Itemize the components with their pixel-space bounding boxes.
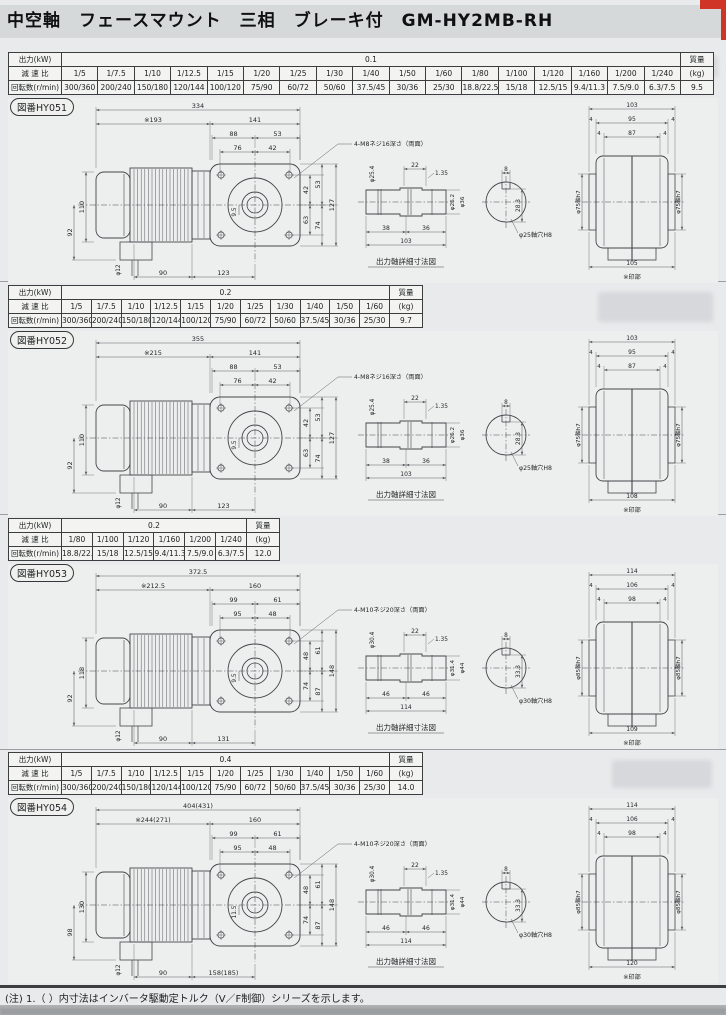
dimension-label: 106 <box>626 816 638 823</box>
dimension-label: 74 <box>314 221 322 229</box>
header-ratio: 減 速 比 <box>9 67 62 81</box>
dimension-label: 46 <box>422 925 430 932</box>
dimension-label: φ85軸h7 <box>674 656 682 680</box>
speed-cell: 15/18 <box>498 81 534 95</box>
dimension-label: 22 <box>411 162 419 169</box>
speed-cell: 60/72 <box>240 314 270 328</box>
dimension-label: 4 <box>597 831 601 837</box>
dimension-label: ※244(271) <box>135 816 170 824</box>
dimension-label: 48 <box>302 886 310 894</box>
speed-cell: 300/360 <box>62 781 92 795</box>
speed-cell: 37.5/45 <box>300 314 330 328</box>
dimension-label: 114 <box>400 704 412 711</box>
header-mass-unit: (kg) <box>390 300 423 314</box>
end-view: 114106449844φ85軸h7φ85軸h7120※印部 <box>574 802 686 981</box>
dimension-label: ※印部 <box>623 739 641 747</box>
dimension-label: 53 <box>273 130 281 138</box>
header-mass-unit: (kg) <box>681 67 714 81</box>
ratio-cell: 1/100 <box>498 67 534 81</box>
dimension-label: 118 <box>78 667 86 679</box>
speed-cell: 50/60 <box>270 314 300 328</box>
dimension-label: 8 <box>504 867 508 873</box>
dimension-label: 92 <box>66 228 74 236</box>
dimension-label: 160 <box>249 582 261 590</box>
speed-cell: 200/240 <box>98 81 134 95</box>
dimension-label: 48 <box>268 844 276 852</box>
ratio-cell: 1/120 <box>123 533 154 547</box>
dimension-label: 123 <box>217 269 229 277</box>
dimension-label: 1.35 <box>435 404 448 410</box>
dimension-label: 90 <box>159 502 167 510</box>
dimension-label: 334 <box>192 102 204 110</box>
dimension-label: 出力軸詳細寸法図 <box>376 956 436 966</box>
red-edge-mark <box>721 8 726 40</box>
ratio-cell: 1/200 <box>185 533 216 547</box>
header-output: 出力(kW) <box>9 753 62 767</box>
dimension-label: 38 <box>382 225 390 232</box>
dimension-label: 4 <box>597 597 601 603</box>
speed-cell: 30/36 <box>389 81 425 95</box>
dimension-label: φ75軸h7 <box>574 423 582 447</box>
dimension-label: 372.5 <box>189 568 208 576</box>
header-speed: 回転数(r/min) <box>9 314 62 328</box>
dimension-label: φ30軸穴H8 <box>519 697 552 705</box>
header-mass: 質量 <box>390 753 423 767</box>
dimension-label: 8 <box>504 167 508 173</box>
dimension-label: φ75軸h7 <box>674 423 682 447</box>
ratio-cell: 1/100 <box>92 533 123 547</box>
dimension-label: 33.3 <box>516 899 522 912</box>
dimension-label: 123 <box>217 502 229 510</box>
dimension-label: 48 <box>268 610 276 618</box>
dimension-label: φ75軸h7 <box>674 190 682 214</box>
ratio-cell: 1/5 <box>62 67 98 81</box>
drawing-area-hy052: 図番HY052 355※215141885376424-M8ネジ16深さ（両面）… <box>8 331 718 516</box>
dimension-label: 61 <box>314 646 322 654</box>
figure-number-badge: 図番HY051 <box>10 98 74 116</box>
output-kw-value: 0.2 <box>62 519 247 533</box>
page-title: 中空軸 フェースマウント 三相 ブレーキ付 GM-HY2MB-RH <box>7 6 553 31</box>
ratio-cell: 1/5 <box>62 767 92 781</box>
ratio-cell: 1/160 <box>154 533 185 547</box>
dimension-label: 90 <box>159 269 167 277</box>
header-mass-unit: (kg) <box>390 767 423 781</box>
dimension-label: 4 <box>597 131 601 137</box>
dimension-label: 99 <box>229 596 237 604</box>
ratio-cell: 1/12.5 <box>171 67 207 81</box>
header-speed: 回転数(r/min) <box>9 547 62 561</box>
speed-cell: 150/180 <box>121 781 151 795</box>
spec-table-hy051: 出力(kW)0.1質量減 速 比1/51/7.51/101/12.51/151/… <box>8 52 714 95</box>
dimension-label: 114 <box>626 568 638 575</box>
shaft-detail-figure: 221.35φ30.4φ31.4φ444646114出力軸詳細寸法図 <box>358 628 466 733</box>
dimension-label: φ31.4 <box>450 893 456 910</box>
section-hy053: 出力(kW)0.2質量減 速 比1/801/1001/1201/1601/200… <box>0 516 726 749</box>
spec-table: 出力(kW)0.2質量減 速 比1/801/1001/1201/1601/200… <box>8 518 280 561</box>
speed-cell: 25/30 <box>426 81 462 95</box>
header-ratio: 減 速 比 <box>9 533 62 547</box>
speed-cell: 37.5/45 <box>300 781 330 795</box>
dimension-label: 4 <box>663 364 667 370</box>
figure-number-badge: 図番HY054 <box>10 798 74 816</box>
dimension-label: 4 <box>589 583 593 589</box>
header-mass: 質量 <box>247 519 280 533</box>
dimension-label: 355 <box>192 335 204 343</box>
header-output: 出力(kW) <box>9 53 62 67</box>
dimension-label: φ85軸h7 <box>574 890 582 914</box>
dimension-label: 9.5 <box>232 207 238 217</box>
keyway-detail: 828.3φ25軸穴H8 <box>482 400 552 472</box>
keyway-detail: 833.3φ30軸穴H8 <box>482 633 552 705</box>
ratio-cell: 1/30 <box>316 67 352 81</box>
ratio-cell: 1/15 <box>181 767 211 781</box>
speed-cell: 30/36 <box>330 781 360 795</box>
dimension-label: 87 <box>314 921 322 929</box>
ratio-cell: 1/60 <box>360 767 390 781</box>
ratio-cell: 1/15 <box>207 67 243 81</box>
dimension-label: 74 <box>314 454 322 462</box>
ratio-cell: 1/25 <box>280 67 316 81</box>
dimension-label: 8 <box>504 400 508 406</box>
shaft-detail-figure: 221.35φ25.4φ26.2φ363836103出力軸詳細寸法図 <box>358 162 466 267</box>
header-mass: 質量 <box>390 286 423 300</box>
speed-cell: 200/240 <box>91 314 121 328</box>
speed-cell: 75/90 <box>211 781 241 795</box>
ratio-cell: 1/40 <box>353 67 389 81</box>
dimension-label: 4 <box>589 350 593 356</box>
dimension-label: 1.35 <box>435 171 448 177</box>
ratio-cell: 1/10 <box>121 300 151 314</box>
dimension-label: φ36 <box>460 196 466 207</box>
dimension-label: 148 <box>328 665 336 677</box>
speed-cell: 120/144 <box>171 81 207 95</box>
dimension-label: 158(185) <box>209 969 239 977</box>
header-speed: 回転数(r/min) <box>9 81 62 95</box>
speed-cell: 75/90 <box>211 314 241 328</box>
ratio-cell: 1/15 <box>181 300 211 314</box>
speed-cell: 100/120 <box>181 781 211 795</box>
dimension-label: 76 <box>233 144 241 152</box>
dimension-label: 108 <box>626 493 638 500</box>
ratio-cell: 1/240 <box>216 533 247 547</box>
ratio-cell: 1/50 <box>330 300 360 314</box>
dimension-label: 127 <box>328 199 336 211</box>
side-and-face-view: 334※193141885376424-M8ネジ16深さ（両面）11092φ12… <box>66 102 427 280</box>
ratio-cell: 1/30 <box>270 767 300 781</box>
figure-number-badge: 図番HY052 <box>10 331 74 349</box>
dimension-label: 114 <box>400 938 412 945</box>
dimension-label: 4 <box>663 597 667 603</box>
ratio-cell: 1/50 <box>330 767 360 781</box>
dimension-label: 130 <box>78 901 86 913</box>
dimension-label: 11.5 <box>232 905 238 918</box>
side-and-face-view: 404(431)※244(271)160996195484-M10ネジ20深さ（… <box>66 802 431 980</box>
speed-cell: 12.5/15 <box>123 547 154 561</box>
dimension-label: 90 <box>159 969 167 977</box>
speed-cell: 6.3/7.5 <box>644 81 681 95</box>
keyway-detail: 833.3φ30軸穴H8 <box>482 867 552 939</box>
dimension-label: 114 <box>626 802 638 809</box>
spec-table-hy052: 出力(kW)0.2質量減 速 比1/51/7.51/101/12.51/151/… <box>8 285 423 328</box>
dimension-label: φ44 <box>460 662 466 673</box>
dimension-label: 95 <box>628 116 636 123</box>
speed-cell: 50/60 <box>270 781 300 795</box>
technical-drawing-hy054: 404(431)※244(271)160996195484-M10ネジ20深さ（… <box>8 798 718 983</box>
ratio-cell: 1/80 <box>62 533 93 547</box>
dimension-label: 42 <box>302 419 310 427</box>
dimension-label: 61 <box>273 596 281 604</box>
dimension-label: 48 <box>302 652 310 660</box>
ratio-cell: 1/80 <box>462 67 498 81</box>
keyway-detail: 828.3φ25軸穴H8 <box>482 167 552 239</box>
dimension-label: 9.5 <box>232 440 238 450</box>
dimension-label: 4 <box>663 131 667 137</box>
dimension-label: 1.35 <box>435 637 448 643</box>
speed-cell: 300/360 <box>62 81 98 95</box>
catalog-page: 中空軸 フェースマウント 三相 ブレーキ付 GM-HY2MB-RH 出力(kW)… <box>0 0 726 1015</box>
dimension-label: 148 <box>328 899 336 911</box>
speed-cell: 100/120 <box>181 314 211 328</box>
speed-cell: 25/30 <box>360 314 390 328</box>
dimension-label: 4-M8ネジ16深さ（両面） <box>354 373 427 381</box>
dimension-label: 127 <box>328 432 336 444</box>
speed-cell: 75/90 <box>244 81 280 95</box>
header-speed: 回転数(r/min) <box>9 781 62 795</box>
figure-number-badge: 図番HY053 <box>10 564 74 582</box>
ratio-cell: 1/7.5 <box>91 767 121 781</box>
ratio-cell: 1/7.5 <box>98 67 134 81</box>
mass-value: 9.7 <box>390 314 423 328</box>
header-output: 出力(kW) <box>9 519 62 533</box>
technical-drawing-hy053: 372.5※212.5160996195484-M10ネジ20深さ（両面）118… <box>8 564 718 749</box>
dimension-label: 4 <box>671 350 675 356</box>
dimension-label: 103 <box>626 335 638 342</box>
dimension-label: 74 <box>302 916 310 924</box>
dimension-label: 36 <box>422 225 430 232</box>
speed-cell: 60/72 <box>280 81 316 95</box>
dimension-label: 105 <box>626 260 638 267</box>
dimension-label: ※193 <box>144 116 162 124</box>
dimension-label: 63 <box>302 449 310 457</box>
dimension-label: 99 <box>229 830 237 838</box>
drawing-area-hy053: 図番HY053 372.5※212.5160996195484-M10ネジ20深… <box>8 564 718 749</box>
dimension-label: 110 <box>78 201 86 213</box>
ratio-cell: 1/5 <box>62 300 92 314</box>
dimension-label: 53 <box>273 363 281 371</box>
ratio-cell: 1/160 <box>571 67 607 81</box>
speed-cell: 120/144 <box>151 314 181 328</box>
section-hy054: 出力(kW)0.4質量減 速 比1/51/7.51/101/12.51/151/… <box>0 750 726 983</box>
speed-cell: 300/360 <box>62 314 92 328</box>
dimension-label: ※215 <box>144 349 162 357</box>
dimension-label: 42 <box>268 377 276 385</box>
dimension-label: φ26.2 <box>450 427 456 443</box>
header-mass-unit: (kg) <box>247 533 280 547</box>
ratio-cell: 1/10 <box>121 767 151 781</box>
speed-cell: 50/60 <box>316 81 352 95</box>
dimension-label: 76 <box>233 377 241 385</box>
ratio-cell: 1/20 <box>244 67 280 81</box>
spec-table: 出力(kW)0.2質量減 速 比1/51/7.51/101/12.51/151/… <box>8 285 423 328</box>
dimension-label: 4 <box>671 583 675 589</box>
shaft-detail-figure: 221.35φ30.4φ31.4φ444646114出力軸詳細寸法図 <box>358 862 466 967</box>
dimension-label: 38 <box>382 458 390 465</box>
dimension-label: 28.3 <box>516 432 522 445</box>
side-and-face-view: 372.5※212.5160996195484-M10ネジ20深さ（両面）118… <box>66 568 431 746</box>
ratio-cell: 1/25 <box>240 300 270 314</box>
spec-table: 出力(kW)0.1質量減 速 比1/51/7.51/101/12.51/151/… <box>8 52 714 95</box>
output-kw-value: 0.2 <box>62 286 390 300</box>
technical-drawing-hy051: 334※193141885376424-M8ネジ16深さ（両面）11092φ12… <box>8 98 718 283</box>
dimension-label: φ31.4 <box>450 659 456 676</box>
dimension-label: 160 <box>249 816 261 824</box>
drawing-area-hy054: 図番HY054 404(431)※244(271)160996195484-M1… <box>8 798 718 983</box>
ratio-cell: 1/12.5 <box>151 300 181 314</box>
dimension-label: 4 <box>589 817 593 823</box>
speed-cell: 60/72 <box>240 781 270 795</box>
dimension-label: ※印部 <box>623 506 641 514</box>
spec-table-hy054: 出力(kW)0.4質量減 速 比1/51/7.51/101/12.51/151/… <box>8 752 423 795</box>
dimension-label: 87 <box>628 363 636 370</box>
dimension-label: 61 <box>314 880 322 888</box>
speed-cell: 37.5/45 <box>353 81 389 95</box>
dimension-label: 92 <box>66 694 74 702</box>
dimension-label: φ25.4 <box>370 165 376 182</box>
section-hy051: 出力(kW)0.1質量減 速 比1/51/7.51/101/12.51/151/… <box>0 50 726 281</box>
header-output: 出力(kW) <box>9 286 62 300</box>
speed-cell: 7.5/9.0 <box>608 81 644 95</box>
ratio-cell: 1/60 <box>426 67 462 81</box>
shaft-detail-figure: 221.35φ25.4φ26.2φ363836103出力軸詳細寸法図 <box>358 395 466 500</box>
dimension-label: 46 <box>382 925 390 932</box>
dimension-label: φ75軸h7 <box>574 190 582 214</box>
dimension-label: 4 <box>663 831 667 837</box>
dimension-label: 95 <box>233 844 241 852</box>
end-view: 10395448744φ75軸h7φ75軸h7105※印部 <box>574 102 686 281</box>
dimension-label: 87 <box>628 130 636 137</box>
dimension-label: 42 <box>268 144 276 152</box>
dimension-label: φ25軸穴H8 <box>519 231 552 239</box>
dimension-label: φ12 <box>116 264 122 276</box>
speed-cell: 9.4/11.3 <box>154 547 185 561</box>
dimension-label: φ25.4 <box>370 398 376 415</box>
dimension-label: φ12 <box>116 730 122 742</box>
ratio-cell: 1/200 <box>608 67 644 81</box>
dimension-label: 4 <box>589 117 593 123</box>
section-hy052: 出力(kW)0.2質量減 速 比1/51/7.51/101/12.51/151/… <box>0 283 726 514</box>
dimension-label: φ85軸h7 <box>674 890 682 914</box>
ratio-cell: 1/60 <box>360 300 390 314</box>
dimension-label: 88 <box>229 363 237 371</box>
dimension-label: 42 <box>302 186 310 194</box>
speed-cell: 150/180 <box>134 81 170 95</box>
dimension-label: 4 <box>671 117 675 123</box>
dimension-label: 95 <box>233 610 241 618</box>
dimension-label: 141 <box>249 116 261 124</box>
side-and-face-view: 355※215141885376424-M8ネジ16深さ（両面）11092φ12… <box>66 335 427 513</box>
dimension-label: φ30.4 <box>370 631 376 648</box>
dimension-label: 4-M10ネジ20深さ（両面） <box>354 840 431 848</box>
end-view: 10395448744φ75軸h7φ75軸h7108※印部 <box>574 335 686 514</box>
dimension-label: 1.35 <box>435 871 448 877</box>
dimension-label: 92 <box>66 461 74 469</box>
speed-cell: 7.5/9.0 <box>185 547 216 561</box>
dimension-label: 63 <box>302 216 310 224</box>
speed-cell: 9.4/11.3 <box>571 81 607 95</box>
speed-cell: 150/180 <box>121 314 151 328</box>
dimension-label: 33.3 <box>516 665 522 678</box>
dimension-label: 95 <box>628 349 636 356</box>
dimension-label: ※印部 <box>623 273 641 281</box>
dimension-label: φ30軸穴H8 <box>519 931 552 939</box>
dimension-label: 22 <box>411 628 419 635</box>
ratio-cell: 1/12.5 <box>151 767 181 781</box>
mass-value: 14.0 <box>390 781 423 795</box>
speed-cell: 120/144 <box>151 781 181 795</box>
dimension-label: φ85軸h7 <box>574 656 582 680</box>
spec-table: 出力(kW)0.4質量減 速 比1/51/7.51/101/12.51/151/… <box>8 752 423 795</box>
ratio-cell: 1/50 <box>389 67 425 81</box>
header-ratio: 減 速 比 <box>9 767 62 781</box>
dimension-label: φ36 <box>460 429 466 440</box>
dimension-label: φ30.4 <box>370 865 376 882</box>
output-kw-value: 0.4 <box>62 753 390 767</box>
ratio-cell: 1/25 <box>240 767 270 781</box>
dimension-label: 22 <box>411 862 419 869</box>
dimension-label: 103 <box>400 471 412 478</box>
speed-cell: 12.5/15 <box>535 81 571 95</box>
speed-cell: 18.8/22.5 <box>62 547 93 561</box>
dimension-label: 74 <box>302 682 310 690</box>
dimension-label: 110 <box>78 434 86 446</box>
speed-cell: 15/18 <box>92 547 123 561</box>
dimension-label: 出力軸詳細寸法図 <box>376 256 436 266</box>
header-mass: 質量 <box>681 53 714 67</box>
dimension-label: φ25軸穴H8 <box>519 464 552 472</box>
dimension-label: 103 <box>400 238 412 245</box>
dimension-label: 28.3 <box>516 199 522 212</box>
dimension-label: φ12 <box>116 964 122 976</box>
dimension-label: 4-M8ネジ16深さ（両面） <box>354 140 427 148</box>
ratio-cell: 1/120 <box>535 67 571 81</box>
dimension-label: 98 <box>66 928 74 936</box>
dimension-label: φ44 <box>460 896 466 907</box>
mass-value: 12.0 <box>247 547 280 561</box>
dimension-label: 106 <box>626 582 638 589</box>
ratio-cell: 1/40 <box>300 300 330 314</box>
dimension-label: 103 <box>626 102 638 109</box>
dimension-label: 53 <box>314 413 322 421</box>
dimension-label: 120 <box>626 960 638 967</box>
dimension-label: 4-M10ネジ20深さ（両面） <box>354 606 431 614</box>
output-kw-value: 0.1 <box>62 53 681 67</box>
speed-cell: 6.3/7.5 <box>216 547 247 561</box>
dimension-label: φ12 <box>116 497 122 509</box>
dimension-label: ※212.5 <box>141 582 165 590</box>
ratio-cell: 1/40 <box>300 767 330 781</box>
ratio-cell: 1/20 <box>211 300 241 314</box>
speed-cell: 25/30 <box>360 781 390 795</box>
ratio-cell: 1/240 <box>644 67 681 81</box>
ratio-cell: 1/30 <box>270 300 300 314</box>
spec-table-hy053: 出力(kW)0.2質量減 速 比1/801/1001/1201/1601/200… <box>8 518 280 561</box>
dimension-label: 109 <box>626 726 638 733</box>
dimension-label: 8 <box>504 633 508 639</box>
speed-cell: 100/120 <box>207 81 243 95</box>
speed-cell: 18.8/22.5 <box>462 81 498 95</box>
dimension-label: ※印部 <box>623 973 641 981</box>
dimension-label: 98 <box>628 830 636 837</box>
